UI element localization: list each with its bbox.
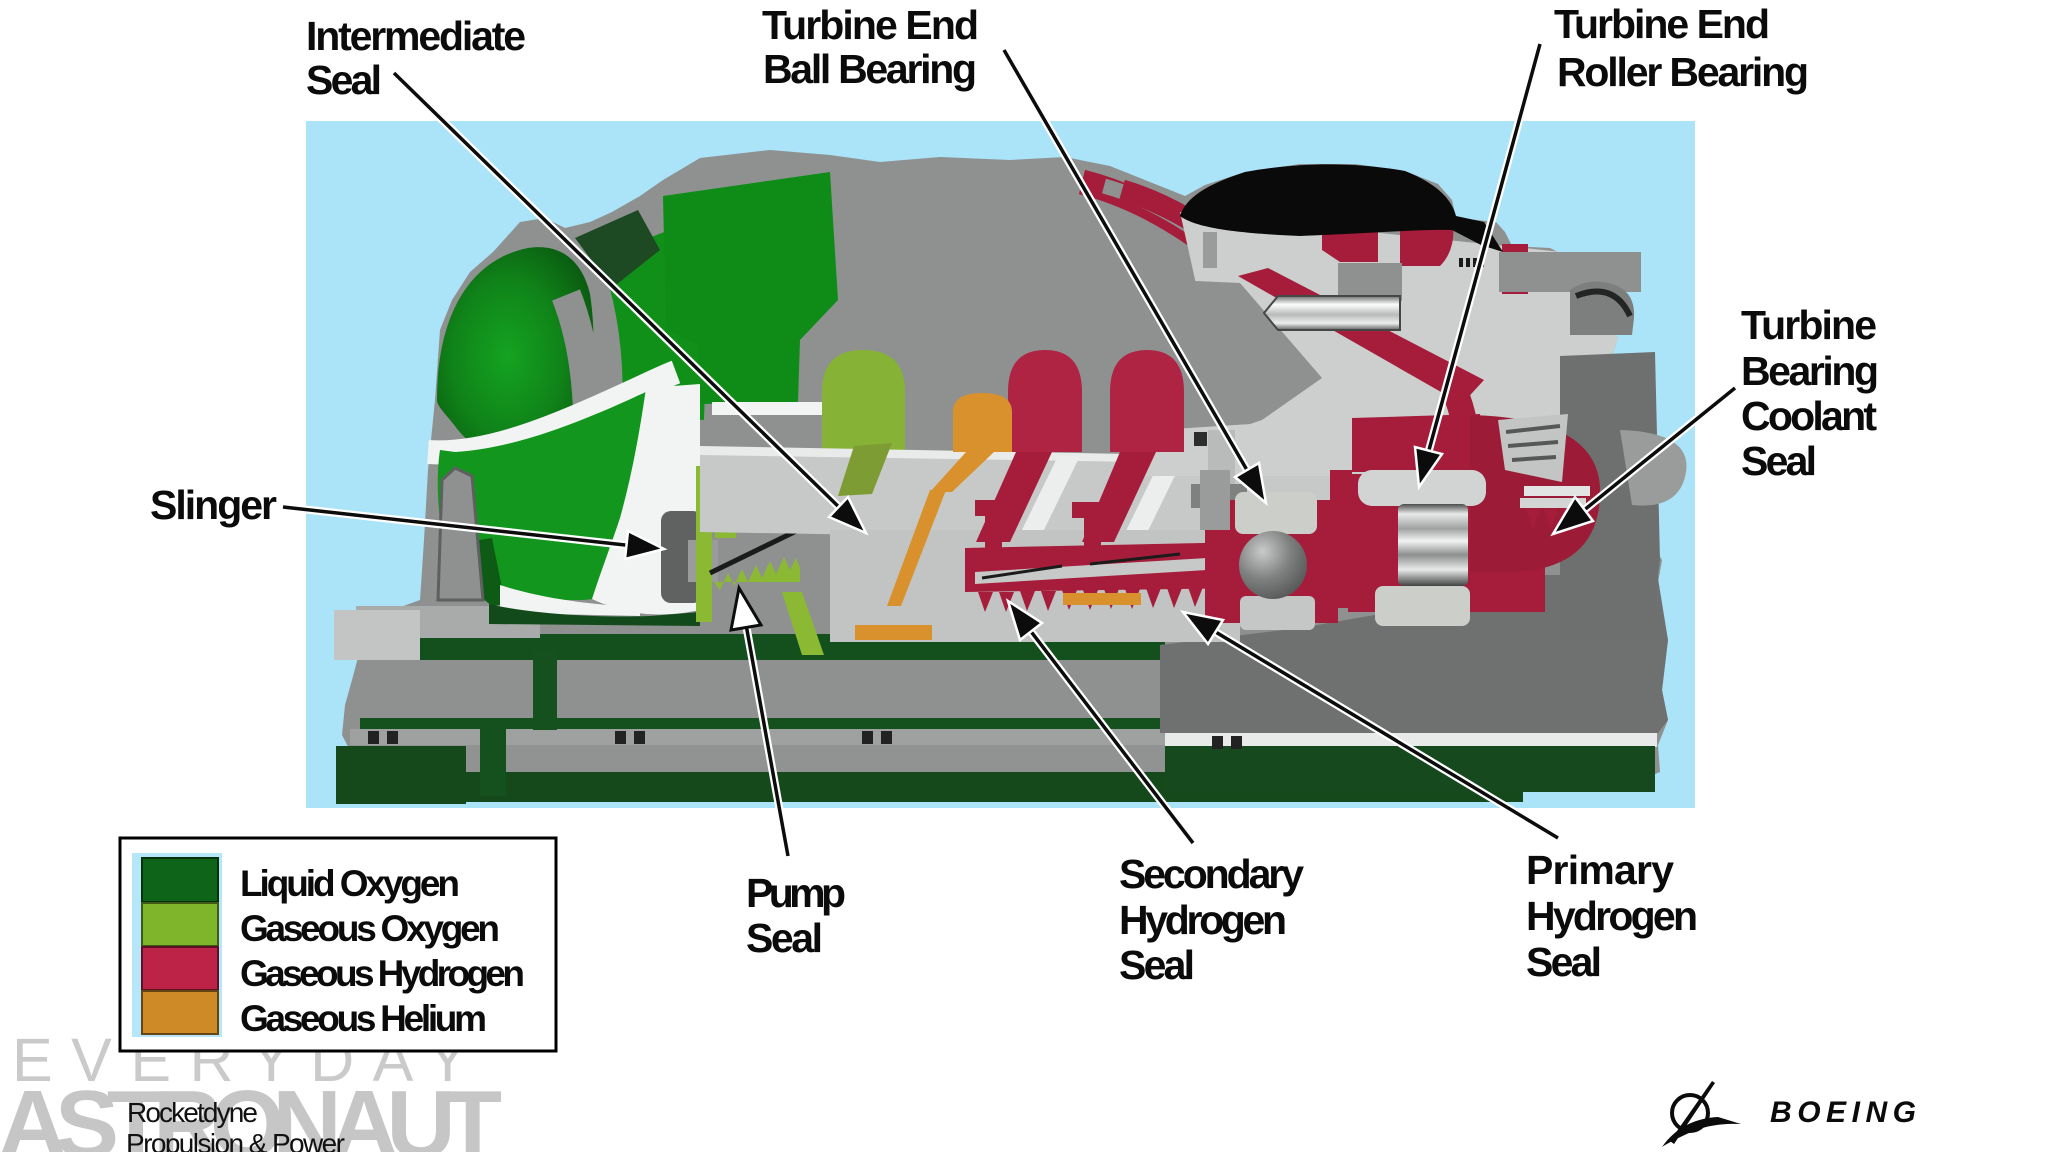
svg-text:Seal: Seal	[1741, 438, 1817, 484]
svg-text:Slinger: Slinger	[150, 482, 277, 528]
svg-text:Pump: Pump	[746, 870, 846, 916]
svg-text:BOEING: BOEING	[1770, 1096, 1916, 1129]
svg-text:Coolant: Coolant	[1741, 393, 1877, 439]
svg-text:Propulsion & Power: Propulsion & Power	[126, 1128, 345, 1152]
svg-text:Seal: Seal	[746, 915, 823, 961]
svg-text:Gaseous Oxygen: Gaseous Oxygen	[240, 908, 500, 949]
svg-text:Gaseous Helium: Gaseous Helium	[240, 998, 487, 1039]
svg-text:Seal: Seal	[1119, 942, 1195, 988]
svg-text:Bearing: Bearing	[1741, 348, 1879, 394]
svg-text:Rocketdyne: Rocketdyne	[127, 1097, 258, 1128]
svg-text:Seal: Seal	[306, 57, 382, 103]
svg-text:Hydrogen: Hydrogen	[1526, 893, 1698, 939]
svg-text:Primary: Primary	[1526, 847, 1674, 893]
svg-text:Turbine: Turbine	[1741, 302, 1877, 348]
svg-text:Turbine End: Turbine End	[762, 2, 979, 48]
svg-text:Intermediate: Intermediate	[306, 13, 526, 59]
svg-text:Gaseous Hydrogen: Gaseous Hydrogen	[240, 953, 525, 994]
svg-text:Seal: Seal	[1526, 939, 1602, 985]
svg-text:Turbine End: Turbine End	[1554, 1, 1770, 47]
svg-text:Secondary: Secondary	[1119, 851, 1304, 897]
svg-text:Hydrogen: Hydrogen	[1119, 897, 1287, 943]
svg-text:Roller Bearing: Roller Bearing	[1557, 49, 1809, 95]
svg-text:Liquid Oxygen: Liquid Oxygen	[240, 863, 460, 904]
svg-text:Ball Bearing: Ball Bearing	[763, 46, 977, 92]
